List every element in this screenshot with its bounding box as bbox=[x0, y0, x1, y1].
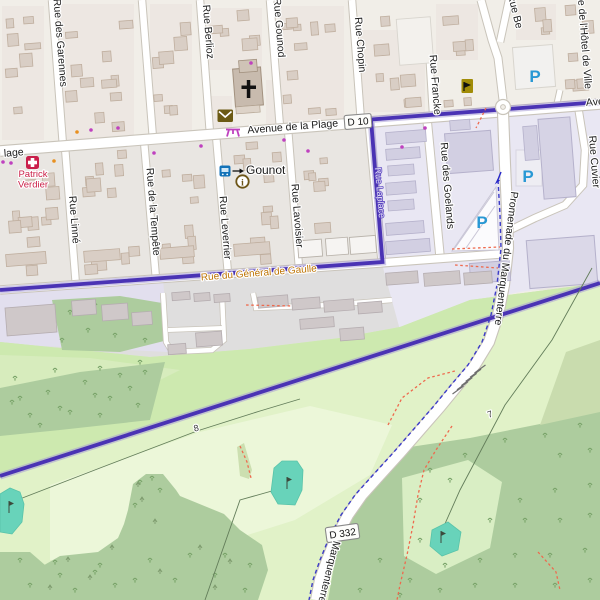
svg-text:P: P bbox=[529, 67, 540, 86]
svg-text:lage: lage bbox=[3, 146, 24, 160]
svg-text:D 10: D 10 bbox=[347, 116, 369, 129]
svg-text:Verdier: Verdier bbox=[18, 180, 48, 191]
svg-text:P: P bbox=[522, 167, 533, 186]
svg-text:P: P bbox=[476, 213, 487, 232]
svg-text:Aven: Aven bbox=[585, 95, 600, 109]
svg-text:i: i bbox=[241, 178, 244, 188]
svg-text:Gounot: Gounot bbox=[246, 163, 286, 177]
svg-text:Patrick: Patrick bbox=[18, 169, 47, 180]
